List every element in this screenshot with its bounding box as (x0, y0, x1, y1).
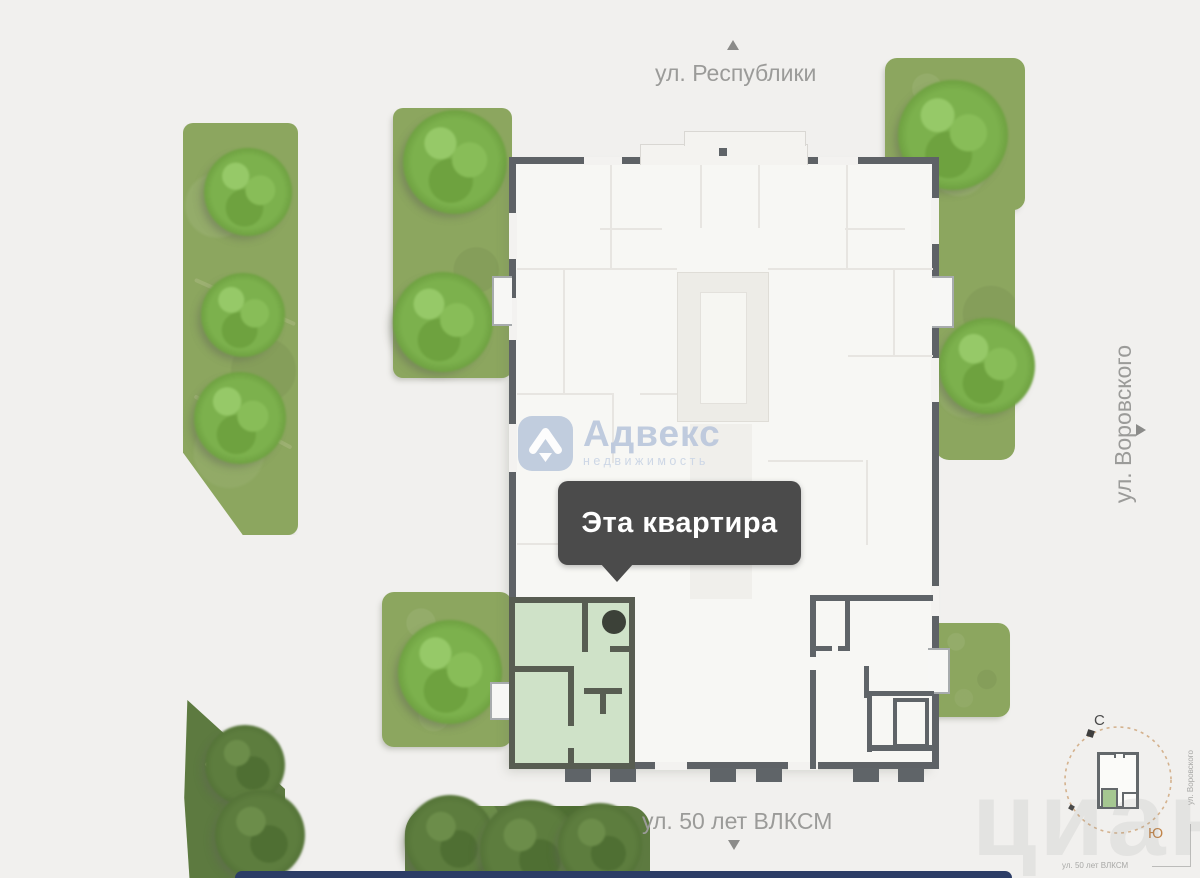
wall-pier (565, 768, 591, 782)
street-label-right: ул. Воровского (1110, 345, 1137, 503)
apartment-wall (610, 646, 635, 652)
wall-segment (719, 148, 727, 156)
street-direction-up-icon (727, 40, 739, 50)
minimap-street-bottom: ул. 50 лет ВЛКСМ (1062, 861, 1128, 870)
window-gap (584, 157, 622, 165)
minimap-entrance-inner (1116, 754, 1123, 758)
window-gap (818, 157, 858, 165)
room-line (758, 165, 760, 228)
room-line (640, 393, 677, 395)
tree (393, 272, 493, 372)
room-line (612, 393, 614, 463)
tree (398, 620, 502, 724)
window-gap (931, 358, 939, 402)
apartment-tooltip[interactable]: Эта квартира (558, 481, 801, 565)
apartment-marker-dot (602, 610, 626, 634)
room-line (893, 268, 895, 355)
room-line (768, 460, 863, 462)
building-core-shaft (700, 292, 747, 404)
window-gap (655, 762, 687, 770)
tree (204, 148, 292, 236)
minimap-building (1097, 752, 1139, 809)
bottom-sheet-handle[interactable] (235, 871, 1012, 878)
apartment-wall (568, 666, 574, 726)
apartment-wall (509, 666, 573, 672)
room-line (517, 268, 677, 270)
wall-segment (810, 646, 832, 651)
street-label-bottom: ул. 50 лет ВЛКСМ (642, 808, 832, 835)
stair-room (893, 698, 929, 748)
minimap-highlighted-apartment (1101, 788, 1118, 809)
tree (215, 790, 305, 878)
room-line (768, 268, 933, 270)
wall-segment (845, 595, 850, 651)
apartment-wall (568, 748, 574, 769)
tree (558, 803, 642, 878)
minimap-callout-line (1152, 866, 1191, 867)
tooltip-pointer (600, 563, 634, 582)
room-line (848, 355, 933, 357)
room-line (846, 165, 848, 268)
street-direction-down-icon (728, 840, 740, 850)
compass-north-label: С (1094, 712, 1105, 729)
wall-pier (710, 768, 736, 782)
wall-segment (864, 691, 934, 696)
tree (201, 273, 285, 357)
minimap-callout-line (1190, 824, 1191, 866)
window-gap (509, 213, 517, 259)
window-gap (509, 424, 517, 472)
room-line (866, 460, 868, 545)
wall-segment (838, 646, 850, 651)
apartment-wall (600, 688, 606, 714)
wall-pier (610, 768, 636, 782)
room-line (517, 393, 612, 395)
compass-south-label: Ю (1148, 825, 1163, 842)
wall-pier (898, 768, 924, 782)
tree (403, 110, 507, 214)
balcony (932, 276, 954, 328)
minimap-street-right: ул. Воровского (1186, 750, 1195, 805)
balcony (928, 648, 950, 694)
room-line (845, 228, 905, 230)
room-line (610, 165, 612, 268)
tooltip-label: Эта квартира (581, 507, 777, 540)
street-label-top: ул. Республики (655, 60, 816, 87)
wall-pier (853, 768, 879, 782)
apartment-wall (582, 597, 588, 652)
window-gap (931, 198, 939, 244)
minimap-room (1122, 792, 1138, 809)
wall-pier (756, 768, 782, 782)
tree (194, 372, 286, 464)
wall-segment (867, 696, 872, 752)
room-line (563, 268, 565, 393)
street-direction-right-icon (1136, 424, 1146, 436)
wall-segment (810, 595, 933, 601)
entrance-protrusion (684, 131, 806, 146)
compass-minimap: С Ю ул. Воровского ул. 50 лет ВЛКСМ (1050, 712, 1200, 878)
wall-segment (810, 670, 816, 769)
balcony (492, 276, 512, 326)
tree (939, 318, 1035, 414)
window-gap (931, 586, 939, 616)
site-plan-map: Адвекс недвижимость Эта квартира ул. Рес… (0, 0, 1200, 878)
room-line (700, 165, 702, 228)
